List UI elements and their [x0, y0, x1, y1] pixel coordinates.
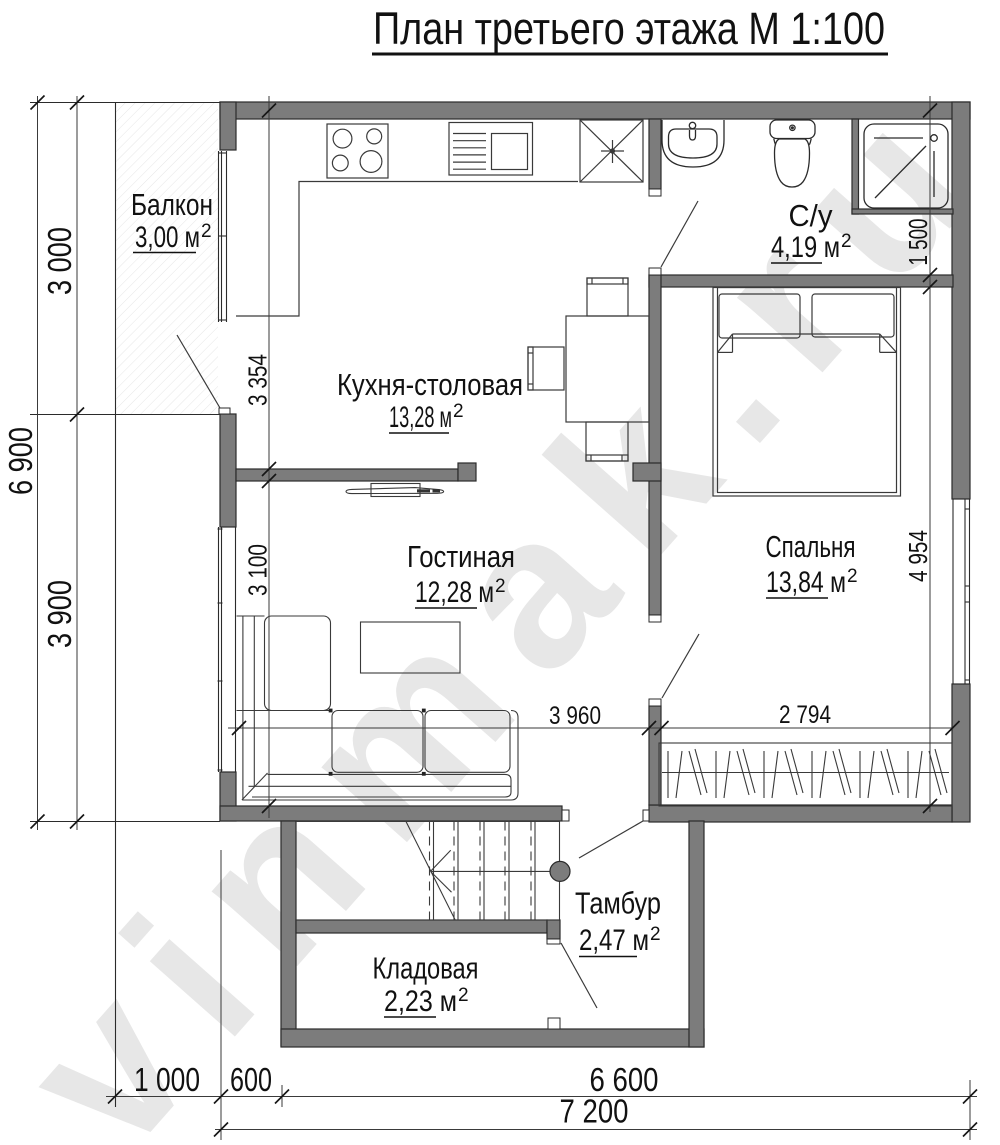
svg-text:600: 600: [230, 1061, 272, 1098]
svg-text:2 794: 2 794: [779, 701, 831, 729]
svg-text:Тамбур: Тамбур: [575, 886, 661, 921]
svg-text:2,47 м: 2,47 м: [579, 924, 649, 957]
svg-text:Кухня-столовая: Кухня-столовая: [337, 367, 523, 402]
svg-text:3 000: 3 000: [41, 227, 78, 295]
svg-text:2,23 м: 2,23 м: [384, 985, 457, 1018]
svg-text:3 900: 3 900: [41, 580, 78, 648]
svg-text:12,28 м: 12,28 м: [415, 576, 494, 609]
svg-text:План третьего этажа М 1:100: План третьего этажа М 1:100: [373, 3, 885, 54]
svg-text:3 100: 3 100: [243, 544, 273, 596]
svg-text:2: 2: [847, 566, 858, 587]
svg-text:13,28 м: 13,28 м: [389, 401, 452, 434]
svg-text:1 000: 1 000: [134, 1061, 200, 1098]
svg-text:3 354: 3 354: [243, 354, 273, 406]
svg-text:Кладовая: Кладовая: [373, 951, 479, 986]
svg-text:Гостиная: Гостиная: [407, 539, 515, 574]
svg-text:2: 2: [841, 231, 852, 252]
svg-text:1 500: 1 500: [903, 219, 933, 266]
svg-text:2: 2: [650, 924, 661, 945]
svg-text:13,84 м: 13,84 м: [766, 566, 846, 599]
svg-text:Спальня: Спальня: [766, 529, 856, 564]
svg-text:С/у: С/у: [789, 198, 833, 233]
svg-text:2: 2: [201, 221, 212, 242]
svg-text:3 960: 3 960: [549, 702, 601, 730]
svg-text:2: 2: [458, 985, 469, 1006]
svg-text:4 954: 4 954: [903, 530, 933, 582]
svg-text:6 900: 6 900: [2, 427, 39, 495]
svg-text:2: 2: [453, 401, 464, 422]
svg-text:4,19 м: 4,19 м: [771, 231, 840, 264]
svg-text:2: 2: [495, 576, 506, 597]
svg-text:7 200: 7 200: [560, 1093, 629, 1130]
svg-text:Балкон: Балкон: [131, 187, 213, 222]
svg-text:3,00 м: 3,00 м: [135, 221, 200, 254]
